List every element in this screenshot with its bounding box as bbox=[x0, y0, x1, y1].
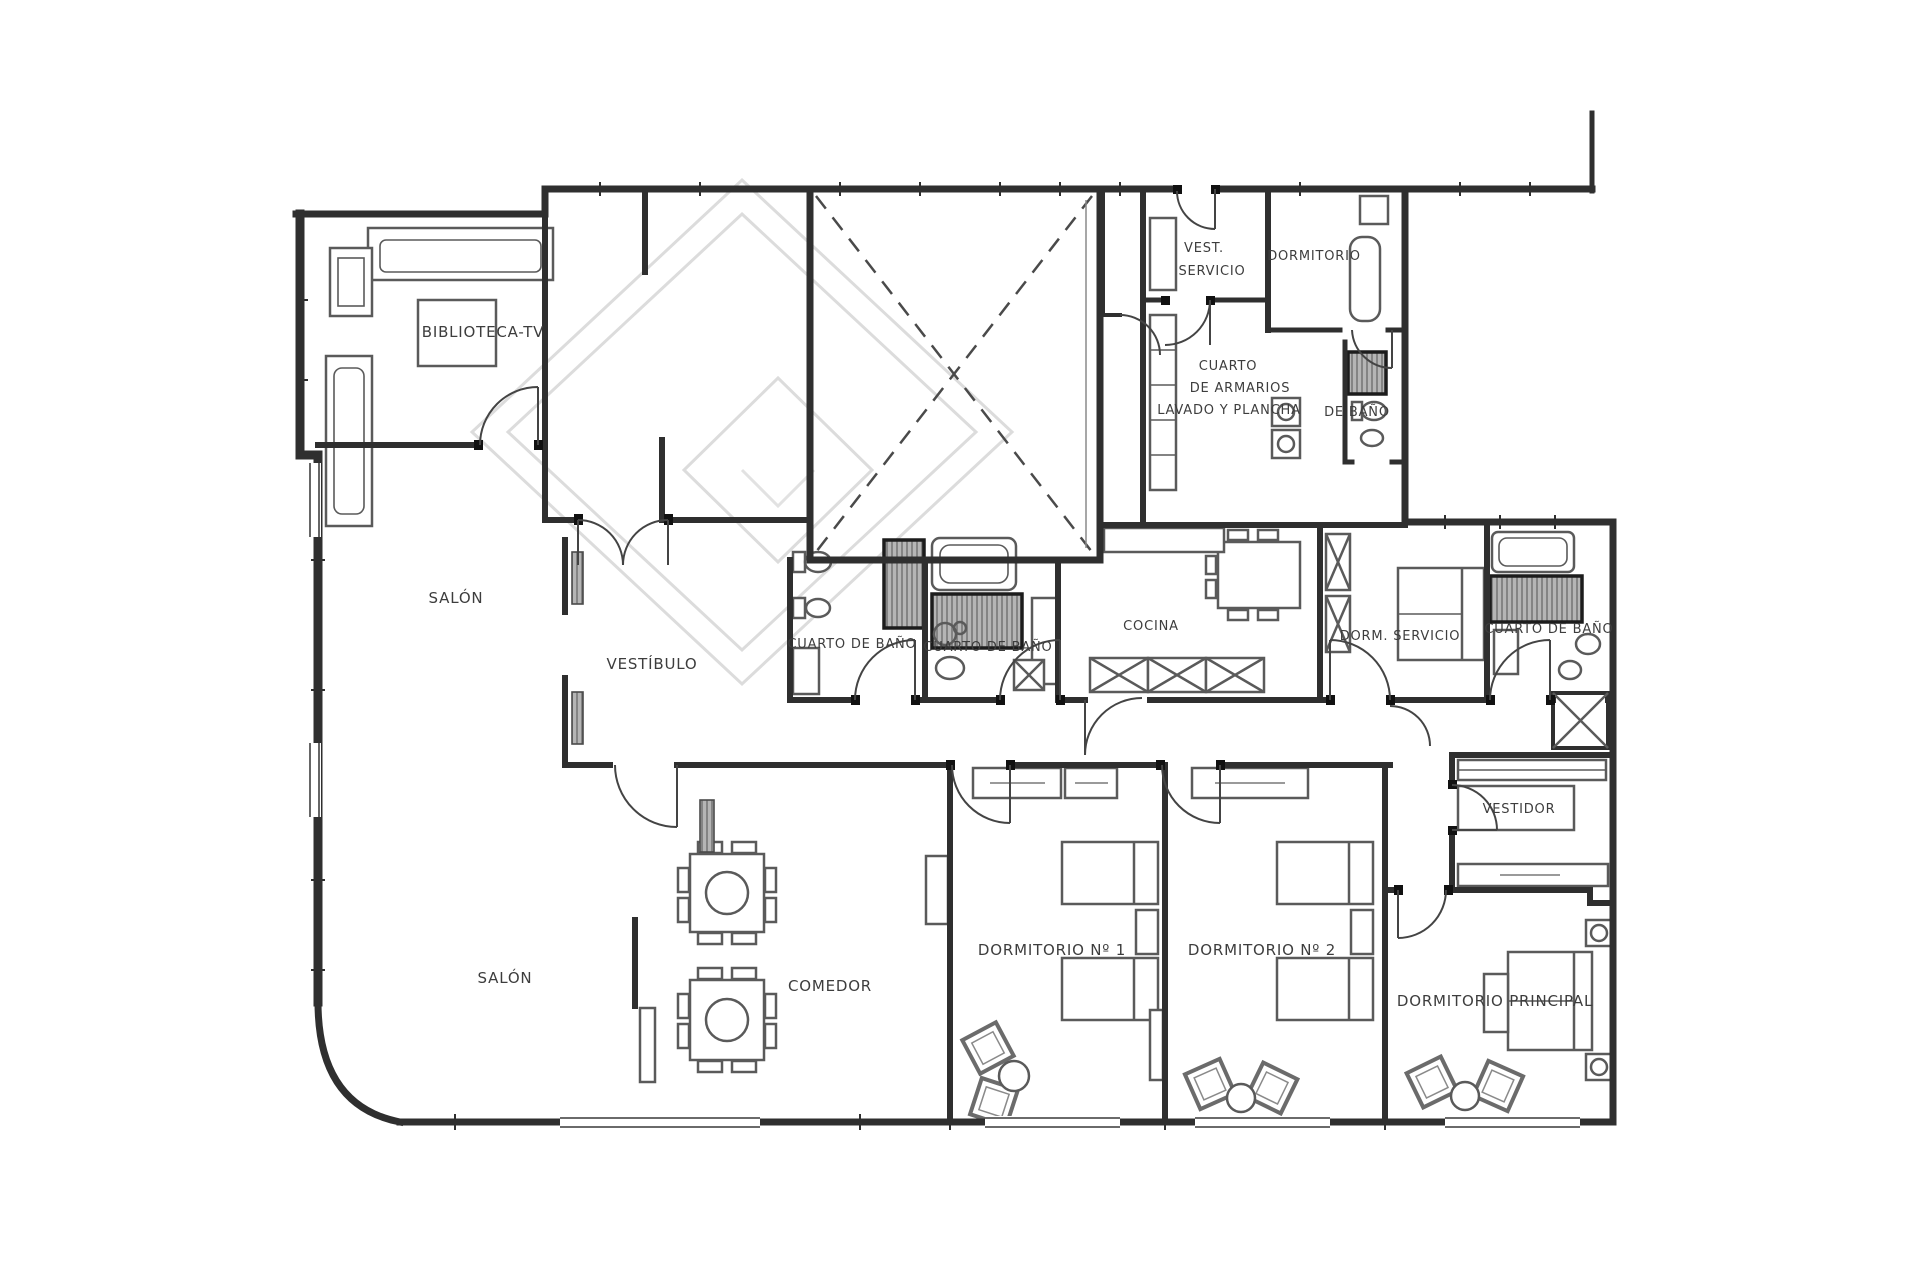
wardrobe-icon bbox=[1065, 768, 1117, 798]
pantry-cabinet-icon bbox=[1326, 534, 1350, 590]
room-label-vestibulo: VESTÍBULO bbox=[607, 654, 698, 673]
room-label-cocina: COCINA bbox=[1123, 619, 1179, 634]
vanity-icon bbox=[793, 648, 819, 694]
room-label-vest-servicio-2: SERVICIO bbox=[1178, 264, 1245, 279]
dining-table-icon bbox=[678, 842, 776, 944]
toilet-icon bbox=[1576, 634, 1600, 654]
bed-icon bbox=[1062, 842, 1158, 904]
appliance-icon bbox=[1148, 658, 1206, 692]
bidet-icon bbox=[1559, 661, 1581, 679]
floor-plan-canvas: BIBLIOTECA-TV SALÓN VESTÍBULO SALÓN COME… bbox=[0, 0, 1920, 1281]
nightstand-icon bbox=[1136, 910, 1158, 954]
shower-icon bbox=[884, 540, 924, 628]
duct-icon bbox=[1360, 196, 1388, 224]
bed-icon bbox=[1277, 958, 1373, 1020]
radiator-icon bbox=[572, 692, 583, 744]
dryer-icon bbox=[1272, 430, 1300, 458]
appliance-icon bbox=[1014, 660, 1044, 690]
room-label-vest-servicio-1: VEST. bbox=[1184, 241, 1224, 256]
side-table-icon bbox=[1451, 1082, 1479, 1110]
armchair-icon bbox=[330, 248, 372, 316]
kitchen-counter-icon bbox=[1104, 528, 1224, 552]
wardrobe-icon bbox=[1192, 768, 1308, 798]
side-table-icon bbox=[999, 1061, 1029, 1091]
nightstand-icon bbox=[1351, 910, 1373, 954]
room-label-cuarto-bano-2: CUARTO DE BAÑO bbox=[923, 639, 1052, 655]
shower-icon bbox=[1490, 576, 1582, 622]
room-label-cuarto-bano-3: CUARTO DE BAÑO bbox=[1484, 621, 1613, 637]
room-label-lavado-plancha: LAVADO Y PLANCHA bbox=[1157, 403, 1301, 418]
shaft-icon bbox=[1553, 693, 1608, 748]
armchair-icon bbox=[1247, 1063, 1298, 1114]
bathtub-icon bbox=[932, 538, 1016, 590]
radiator-icon bbox=[640, 1008, 655, 1082]
room-label-cuarto-armarios-2: DE ARMARIOS bbox=[1190, 381, 1291, 396]
appliance-icon bbox=[1206, 658, 1264, 692]
toilet-icon bbox=[936, 657, 964, 679]
appliance-icon bbox=[1090, 658, 1148, 692]
room-label-comedor: COMEDOR bbox=[788, 977, 872, 995]
wardrobe-icon bbox=[1458, 760, 1606, 780]
wardrobe-icon bbox=[973, 768, 1061, 798]
sofa-icon bbox=[368, 228, 553, 280]
closet-icon bbox=[1150, 218, 1176, 290]
radiator-icon bbox=[700, 800, 714, 852]
side-table-icon bbox=[1227, 1084, 1255, 1112]
bed-icon bbox=[1398, 568, 1484, 660]
room-label-cuarto-bano-1: CUARTO DE BAÑO bbox=[787, 636, 916, 652]
room-label-dormitorio-1: DORMITORIO Nº 1 bbox=[978, 941, 1126, 959]
radiator-icon bbox=[1150, 1010, 1163, 1080]
sofa-icon bbox=[326, 356, 372, 526]
room-label-salon-inferior: SALÓN bbox=[478, 968, 533, 987]
armchair-icon bbox=[1473, 1061, 1523, 1111]
bidet-icon bbox=[793, 598, 830, 618]
room-label-dormitorio-servicio: DORMITORIO bbox=[1267, 249, 1361, 264]
room-label-dormitorio-2: DORMITORIO Nº 2 bbox=[1188, 941, 1336, 959]
patio-lightwell bbox=[816, 196, 1092, 552]
bed-icon bbox=[1277, 842, 1373, 904]
room-label-dorm-servicio: DORM. SERVICIO bbox=[1340, 629, 1461, 644]
nightstand-icon bbox=[1586, 1054, 1612, 1080]
wardrobe-icon bbox=[1458, 864, 1608, 886]
armchair-icon bbox=[1407, 1057, 1458, 1108]
bathtub-icon bbox=[1492, 532, 1574, 572]
sideboard-icon bbox=[926, 856, 948, 924]
room-label-salon-superior: SALÓN bbox=[429, 588, 484, 607]
room-label-dormitorio-ppal: DORMITORIO PRINCIPAL bbox=[1397, 992, 1593, 1010]
room-label-vestidor: VESTIDOR bbox=[1483, 802, 1556, 817]
room-label-de-bano: DE BAÑO bbox=[1324, 404, 1390, 420]
nightstand-icon bbox=[1586, 920, 1612, 946]
bed-icon bbox=[1062, 958, 1158, 1020]
bidet-icon bbox=[1361, 430, 1383, 446]
room-label-cuarto-armarios-1: CUARTO bbox=[1199, 359, 1258, 374]
dining-table-icon bbox=[678, 968, 776, 1072]
room-label-biblioteca-tv: BIBLIOTECA-TV bbox=[422, 323, 545, 341]
floor-plan-page: BIBLIOTECA-TV SALÓN VESTÍBULO SALÓN COME… bbox=[0, 0, 1920, 1281]
